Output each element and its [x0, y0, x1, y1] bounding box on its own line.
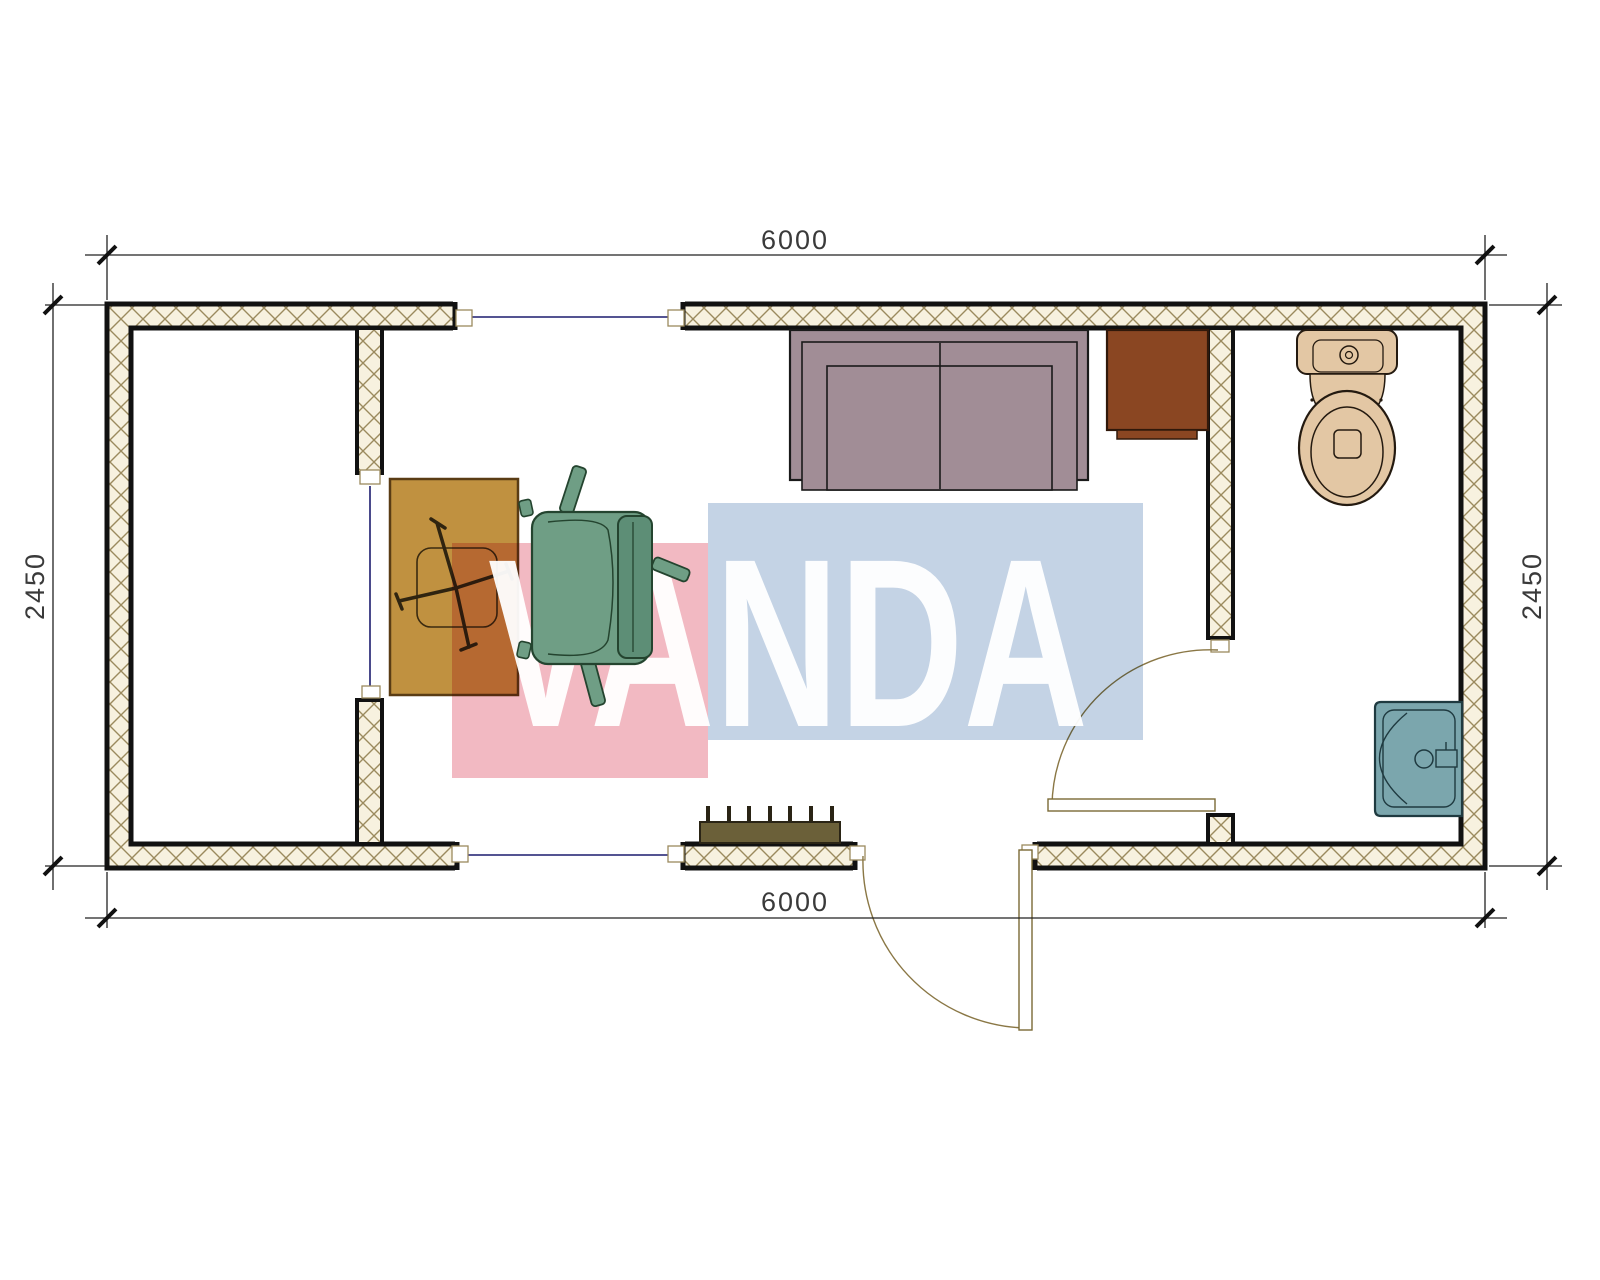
side-table-top — [1107, 330, 1208, 430]
floor-plan-drawing: 6000 6000 2450 2450 — [0, 0, 1600, 1280]
left-partition-lower — [357, 700, 382, 844]
radiator — [700, 806, 840, 843]
chair-caster-top-left — [518, 499, 533, 517]
left-partition-upper — [357, 328, 382, 473]
toilet — [1297, 330, 1397, 505]
interior-door-leaf — [1048, 799, 1215, 811]
sink-faucet — [1436, 750, 1457, 767]
bathroom-partition — [1208, 328, 1233, 638]
sink — [1375, 702, 1462, 816]
dim-top: 6000 — [761, 225, 829, 255]
dim-right: 2450 — [1517, 552, 1547, 620]
side-table-foot — [1117, 430, 1197, 439]
dim-left: 2450 — [20, 552, 50, 620]
radiator-body — [700, 822, 840, 843]
exterior-door-opening — [853, 838, 1037, 873]
radiator-fins — [708, 806, 832, 822]
chair-arm-top — [559, 465, 587, 515]
exterior-door — [863, 850, 1032, 1030]
dim-bottom: 6000 — [761, 887, 829, 917]
exterior-door-leaf — [1019, 850, 1032, 1030]
window-top-opening — [453, 298, 685, 333]
sofa — [790, 330, 1088, 490]
side-table — [1107, 330, 1208, 439]
bathroom-partition-stub — [1208, 815, 1233, 844]
floor-plan-canvas: 6000 6000 2450 2450 — [0, 0, 1600, 1280]
chair-backrest — [618, 516, 652, 658]
exterior-door-swing-arc — [863, 856, 1025, 1028]
chair-caster-bottom-left — [516, 641, 531, 659]
toilet-bowl — [1299, 391, 1395, 505]
